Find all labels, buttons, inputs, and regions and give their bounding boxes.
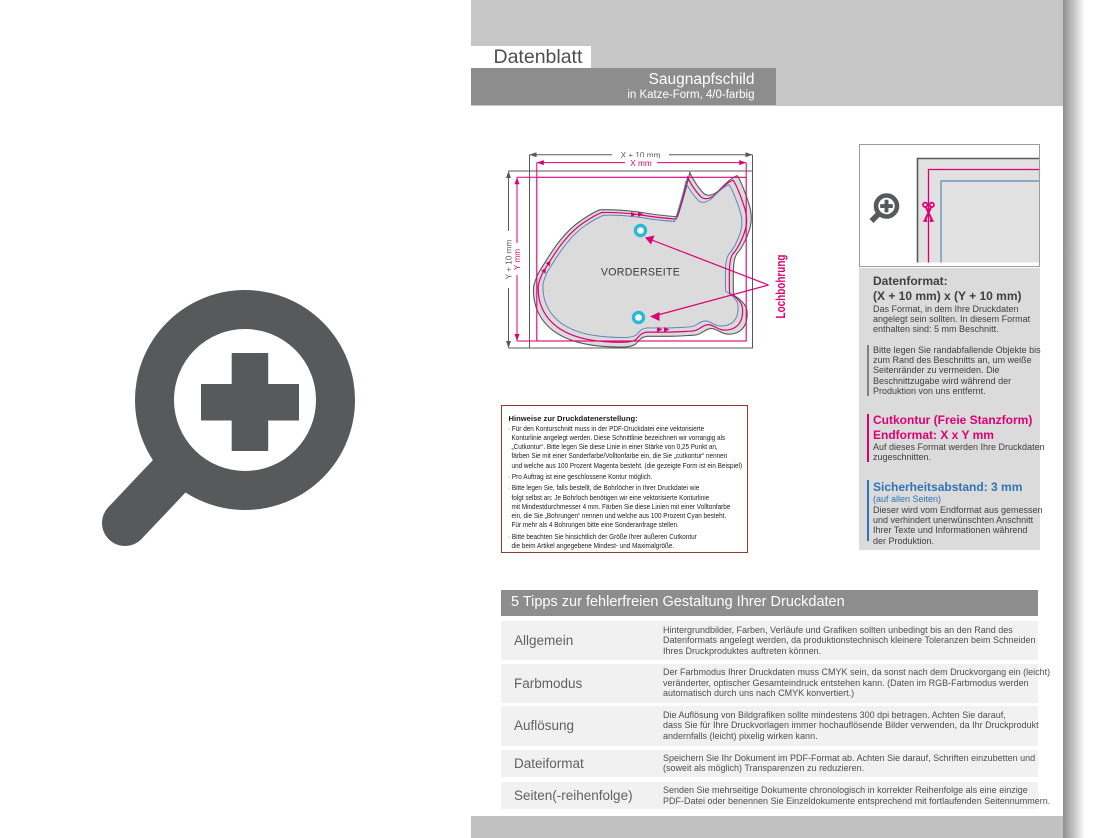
svg-text:VORDERSEITE: VORDERSEITE — [601, 267, 680, 279]
svg-text:Lochbohrung: Lochbohrung — [773, 254, 788, 318]
svg-text:X mm: X mm — [630, 159, 652, 168]
svg-text:Y mm: Y mm — [513, 249, 522, 270]
